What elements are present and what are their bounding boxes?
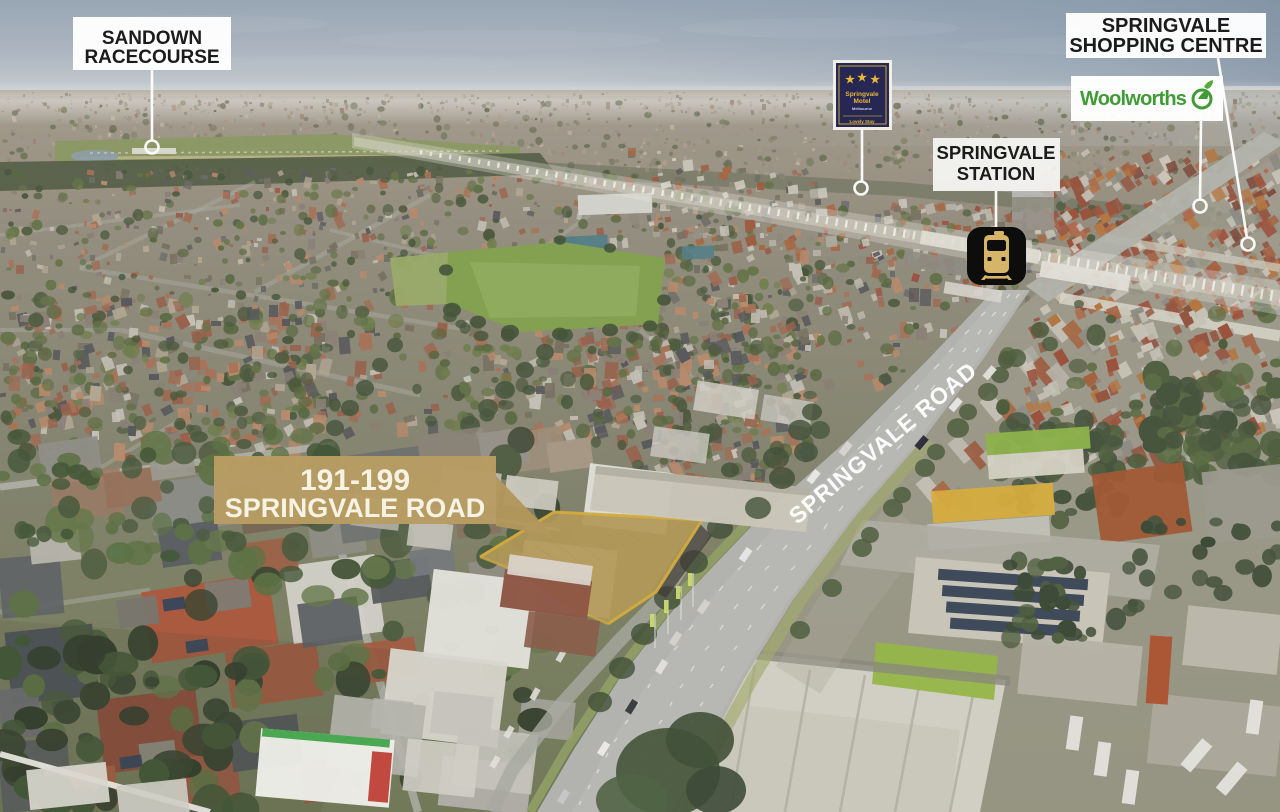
svg-text:SHOPPING CENTRE: SHOPPING CENTRE xyxy=(1069,35,1262,57)
svg-text:SANDOWN: SANDOWN xyxy=(102,28,202,49)
svg-text:SPRINGVALE ROAD: SPRINGVALE ROAD xyxy=(225,493,486,523)
svg-text:Woolworths: Woolworths xyxy=(1080,88,1187,110)
svg-text:RACECOURSE: RACECOURSE xyxy=(84,47,219,68)
svg-text:Springvale: Springvale xyxy=(845,91,879,98)
svg-text:★: ★ xyxy=(870,74,880,86)
svg-text:Lovely Stay: Lovely Stay xyxy=(849,119,875,124)
svg-text:★: ★ xyxy=(845,74,855,86)
svg-text:SPRINGVALE: SPRINGVALE xyxy=(1102,15,1231,37)
svg-text:STATION: STATION xyxy=(957,163,1035,184)
svg-text:★: ★ xyxy=(857,72,867,84)
svg-text:Melbourne: Melbourne xyxy=(852,106,873,111)
svg-text:SPRINGVALE: SPRINGVALE xyxy=(937,142,1056,163)
svg-text:Motel: Motel xyxy=(854,98,871,105)
